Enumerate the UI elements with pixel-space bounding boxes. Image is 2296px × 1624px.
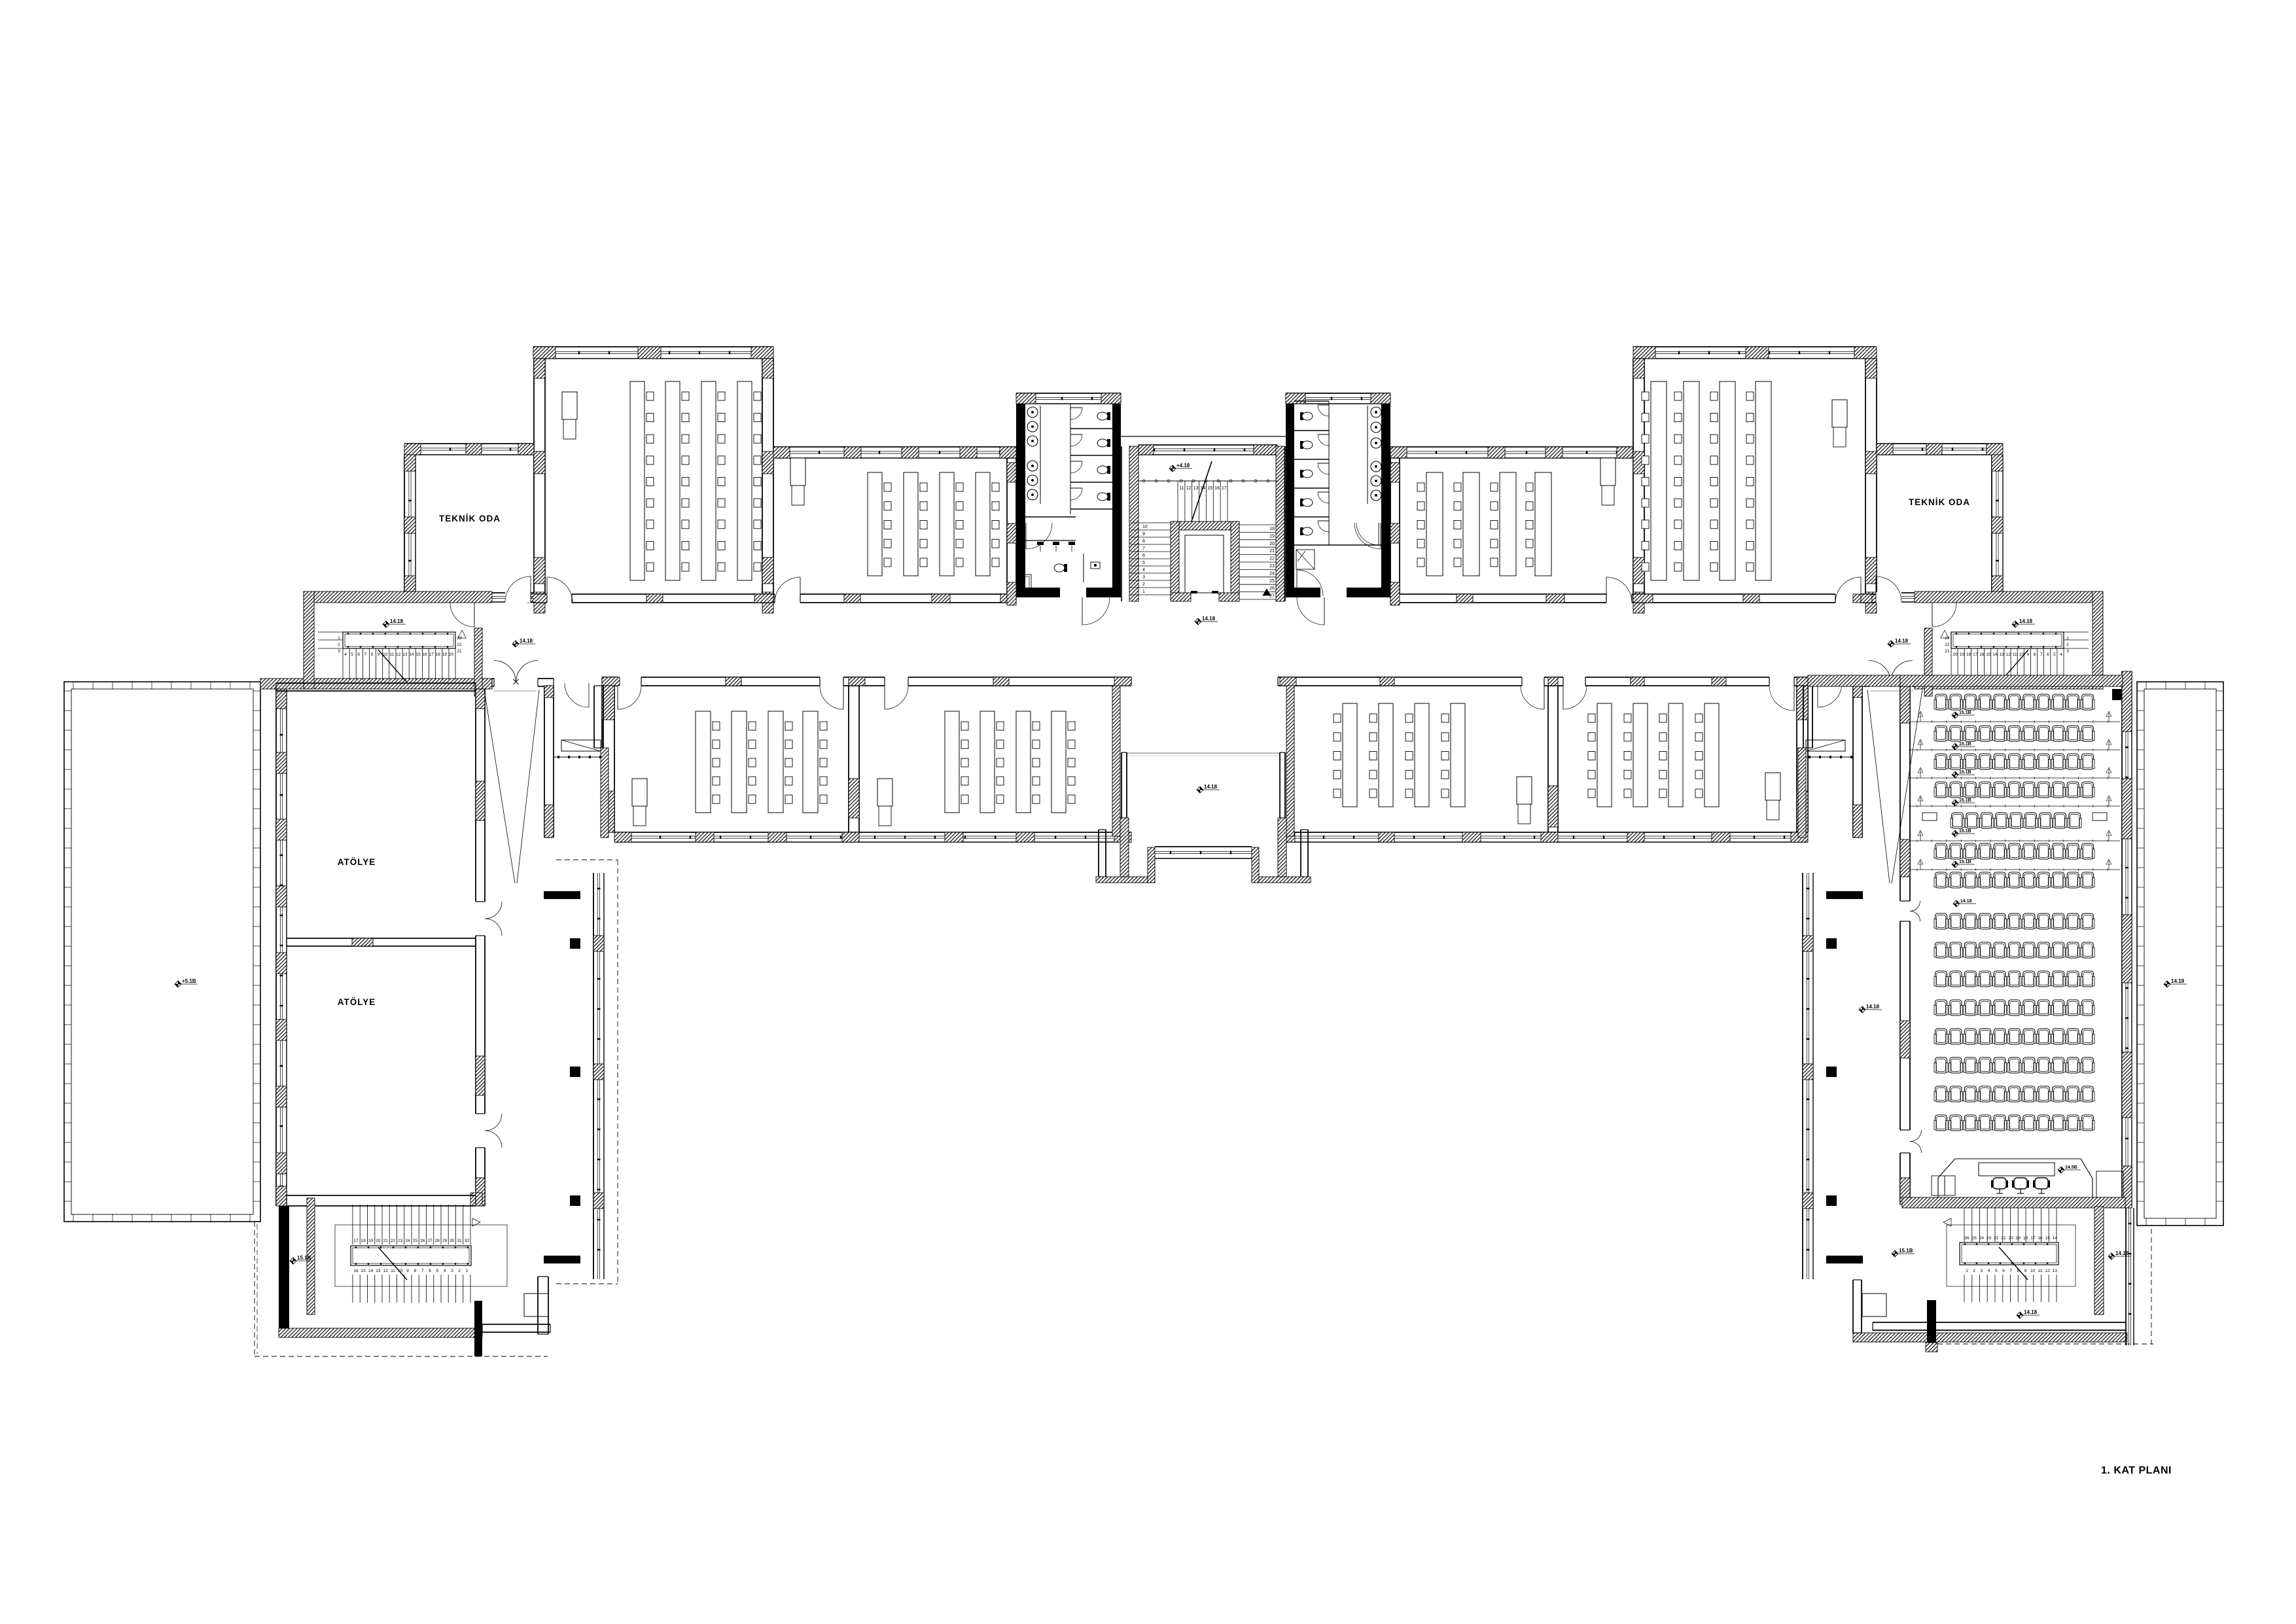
svg-text:22: 22 <box>391 1239 396 1243</box>
svg-text:7: 7 <box>1142 546 1145 551</box>
svg-text:10: 10 <box>2019 652 2024 657</box>
svg-text:15.1B: 15.1B <box>1959 798 1971 803</box>
svg-text:9: 9 <box>406 1269 409 1273</box>
svg-text:1: 1 <box>466 1269 468 1273</box>
svg-text:6: 6 <box>2002 1269 2005 1273</box>
svg-text:12: 12 <box>396 652 401 657</box>
svg-text:3: 3 <box>1981 1269 1983 1273</box>
svg-text:19: 19 <box>2016 1236 2021 1241</box>
svg-text:5: 5 <box>1142 561 1145 565</box>
svg-text:26: 26 <box>1964 1236 1969 1241</box>
svg-text:17: 17 <box>1222 486 1227 491</box>
svg-text:17: 17 <box>353 1239 359 1243</box>
svg-text:5: 5 <box>2053 652 2056 657</box>
svg-text:14.18: 14.18 <box>1895 638 1909 644</box>
svg-text:14.18: 14.18 <box>1866 1004 1880 1010</box>
svg-text:8: 8 <box>371 652 374 657</box>
svg-text:18: 18 <box>2023 1236 2028 1241</box>
svg-text:12: 12 <box>2006 652 2011 657</box>
svg-text:16: 16 <box>1979 652 1985 657</box>
svg-text:21: 21 <box>1945 649 1950 654</box>
svg-text:14: 14 <box>1992 652 1998 657</box>
svg-text:13: 13 <box>1999 652 2004 657</box>
svg-text:3: 3 <box>1142 575 1145 580</box>
svg-text:25: 25 <box>413 1239 418 1243</box>
svg-text:5: 5 <box>436 1269 438 1273</box>
svg-text:3: 3 <box>451 1269 453 1273</box>
svg-text:15: 15 <box>415 652 421 657</box>
svg-text:28: 28 <box>435 1239 440 1243</box>
svg-text:9: 9 <box>378 652 380 657</box>
svg-text:14.18: 14.18 <box>2171 978 2185 984</box>
svg-text:20: 20 <box>1953 652 1958 657</box>
svg-text:4: 4 <box>1988 1269 1990 1273</box>
svg-text:12: 12 <box>2045 1269 2051 1273</box>
svg-text:22: 22 <box>1994 1236 1999 1241</box>
svg-text:24: 24 <box>405 1239 410 1243</box>
svg-text:15: 15 <box>2045 1236 2051 1241</box>
svg-text:23: 23 <box>398 1239 403 1243</box>
svg-text:15.1B: 15.1B <box>1959 860 1971 864</box>
svg-text:20: 20 <box>376 1239 381 1243</box>
svg-text:27: 27 <box>427 1239 433 1243</box>
svg-text:11: 11 <box>2038 1269 2043 1273</box>
svg-text:14: 14 <box>368 1269 374 1273</box>
svg-text:+4.18: +4.18 <box>1176 463 1190 468</box>
svg-text:14.18: 14.18 <box>2019 618 2033 624</box>
svg-text:4: 4 <box>2060 652 2062 657</box>
svg-text:25: 25 <box>1269 579 1275 584</box>
svg-text:2: 2 <box>338 643 340 647</box>
svg-text:5: 5 <box>351 652 353 657</box>
svg-text:8: 8 <box>1142 539 1145 544</box>
svg-text:14: 14 <box>409 652 414 657</box>
svg-text:20: 20 <box>1269 542 1275 546</box>
svg-text:13: 13 <box>402 652 408 657</box>
svg-text:23: 23 <box>457 636 462 641</box>
svg-text:19: 19 <box>1960 652 1965 657</box>
svg-text:15.1B: 15.1B <box>1959 770 1971 775</box>
svg-text:14.18: 14.18 <box>390 618 404 624</box>
svg-text:2: 2 <box>2066 643 2069 647</box>
svg-text:21: 21 <box>457 649 462 654</box>
svg-text:7: 7 <box>364 652 366 657</box>
svg-text:8: 8 <box>2034 652 2036 657</box>
svg-text:ATÖLYE: ATÖLYE <box>338 997 376 1007</box>
svg-text:14.5B: 14.5B <box>2065 1165 2077 1170</box>
svg-text:20: 20 <box>449 652 454 657</box>
svg-text:7: 7 <box>2040 652 2043 657</box>
svg-text:7: 7 <box>421 1269 424 1273</box>
svg-text:17: 17 <box>1973 652 1978 657</box>
svg-text:17: 17 <box>429 652 434 657</box>
svg-text:21: 21 <box>1269 549 1275 554</box>
svg-text:4: 4 <box>444 1269 446 1273</box>
svg-text:14.18: 14.18 <box>520 638 533 644</box>
svg-text:16: 16 <box>1214 486 1220 491</box>
svg-text:1: 1 <box>1966 1269 1968 1273</box>
svg-text:15.1B: 15.1B <box>1959 829 1971 834</box>
svg-text:14.18: 14.18 <box>1204 784 1218 790</box>
svg-text:14: 14 <box>2053 1236 2058 1241</box>
svg-text:3: 3 <box>338 649 340 654</box>
svg-text:15.1B: 15.1B <box>1899 1248 1913 1254</box>
svg-text:13: 13 <box>1193 486 1199 491</box>
svg-text:18: 18 <box>361 1239 366 1243</box>
svg-text:21: 21 <box>2001 1236 2006 1241</box>
svg-text:16: 16 <box>353 1269 359 1273</box>
svg-text:2: 2 <box>458 1269 461 1273</box>
svg-text:14.18: 14.18 <box>2115 1250 2129 1256</box>
svg-text:15.1B: 15.1B <box>1959 742 1971 747</box>
svg-text:22: 22 <box>1269 557 1275 561</box>
svg-text:TEKNİK ODA: TEKNİK ODA <box>1909 497 1970 507</box>
svg-text:20: 20 <box>2009 1236 2014 1241</box>
svg-text:5: 5 <box>1995 1269 1998 1273</box>
svg-text:17: 17 <box>2030 1236 2036 1241</box>
svg-text:1: 1 <box>1142 590 1145 594</box>
svg-text:12: 12 <box>1186 486 1192 491</box>
svg-text:29: 29 <box>442 1239 448 1243</box>
svg-text:TEKNİK ODA: TEKNİK ODA <box>439 514 501 523</box>
svg-text:24: 24 <box>1979 1236 1985 1241</box>
svg-text:14.18: 14.18 <box>2024 1309 2038 1315</box>
svg-text:22: 22 <box>457 643 462 647</box>
svg-text:11: 11 <box>389 652 394 657</box>
svg-text:14.18: 14.18 <box>1202 616 1216 622</box>
svg-text:13: 13 <box>2053 1269 2058 1273</box>
svg-text:18: 18 <box>1269 527 1275 531</box>
svg-text:10: 10 <box>1142 525 1148 529</box>
svg-text:22: 22 <box>1945 643 1950 647</box>
svg-text:3: 3 <box>2066 649 2069 654</box>
svg-text:32: 32 <box>465 1239 470 1243</box>
svg-text:15: 15 <box>361 1269 366 1273</box>
svg-text:2: 2 <box>1973 1269 1975 1273</box>
svg-text:13: 13 <box>376 1269 381 1273</box>
svg-text:11: 11 <box>1179 486 1184 491</box>
svg-text:15.1B: 15.1B <box>1959 711 1971 715</box>
svg-text:ATÖLYE: ATÖLYE <box>338 857 376 867</box>
svg-text:1. KAT PLANI: 1. KAT PLANI <box>2101 1465 2172 1476</box>
svg-text:9: 9 <box>1142 532 1145 537</box>
svg-text:23: 23 <box>1269 564 1275 569</box>
svg-text:11: 11 <box>2013 652 2017 657</box>
svg-text:6: 6 <box>2047 652 2049 657</box>
svg-text:2: 2 <box>1142 582 1145 587</box>
svg-text:19: 19 <box>368 1239 374 1243</box>
svg-text:21: 21 <box>383 1239 389 1243</box>
svg-text:8: 8 <box>414 1269 417 1273</box>
svg-text:16: 16 <box>2038 1236 2043 1241</box>
svg-text:4: 4 <box>1142 568 1145 573</box>
svg-text:16: 16 <box>423 652 428 657</box>
svg-text:30: 30 <box>450 1239 455 1243</box>
svg-text:24: 24 <box>1269 571 1275 576</box>
svg-text:15: 15 <box>1207 486 1212 491</box>
svg-text:26: 26 <box>420 1239 425 1243</box>
svg-text:18: 18 <box>1966 652 1971 657</box>
svg-text:19: 19 <box>1269 534 1275 538</box>
svg-text:9: 9 <box>2024 1269 2027 1273</box>
svg-text:12: 12 <box>383 1269 389 1273</box>
svg-text:+5.1B: +5.1B <box>182 978 196 984</box>
svg-text:6: 6 <box>1142 554 1145 558</box>
svg-text:19: 19 <box>442 652 448 657</box>
svg-text:15: 15 <box>1986 652 1991 657</box>
svg-text:23: 23 <box>1987 1236 1992 1241</box>
svg-text:25: 25 <box>1972 1236 1977 1241</box>
svg-text:4: 4 <box>344 652 347 657</box>
svg-text:6: 6 <box>429 1269 431 1273</box>
svg-text:23: 23 <box>1945 636 1950 641</box>
svg-text:14.18: 14.18 <box>1960 899 1972 904</box>
svg-text:7: 7 <box>2009 1269 2012 1273</box>
svg-text:18: 18 <box>436 652 441 657</box>
svg-text:11: 11 <box>391 1269 395 1273</box>
svg-text:10: 10 <box>2030 1269 2036 1273</box>
svg-text:6: 6 <box>357 652 360 657</box>
svg-text:31: 31 <box>457 1239 463 1243</box>
svg-text:26: 26 <box>1269 586 1275 591</box>
svg-text:15.1B: 15.1B <box>297 1255 311 1261</box>
svg-text:9: 9 <box>2027 652 2030 657</box>
